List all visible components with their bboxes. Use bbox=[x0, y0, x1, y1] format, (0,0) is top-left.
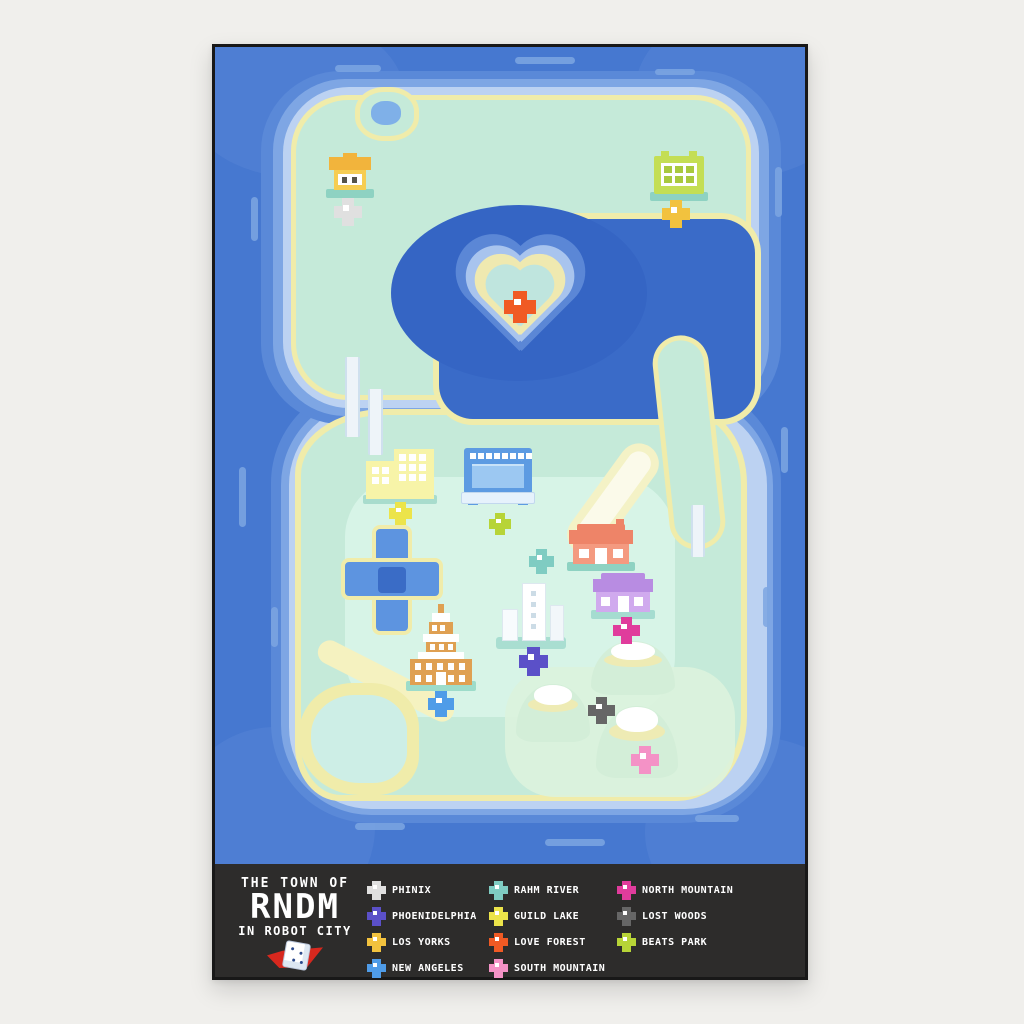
legend-chip-los-yorks-icon bbox=[367, 933, 386, 952]
legend-item-love-forest: LOVE FOREST bbox=[489, 930, 617, 954]
legend-chip-beats-park-icon bbox=[617, 933, 636, 952]
lake-deep-water bbox=[378, 567, 406, 593]
map-marker-phinix-icon bbox=[334, 198, 362, 226]
legend-item-new-angeles: NEW ANGELES bbox=[367, 956, 489, 980]
legend-chip-new-angeles-icon bbox=[367, 959, 386, 978]
wave-mark bbox=[545, 839, 605, 846]
map-marker-rahm-river-icon bbox=[529, 549, 554, 574]
map-marker-beats-park-icon bbox=[489, 513, 511, 535]
legend-chip-north-mountain-icon bbox=[617, 881, 636, 900]
white-skyscrapers bbox=[496, 581, 566, 651]
legend-band: THE TOWN OF RNDM IN ROBOT CITY PHINIXPHO… bbox=[215, 864, 805, 977]
legend-label-rahm-river: RAHM RIVER bbox=[514, 885, 579, 896]
legend-label-guild-lake: GUILD LAKE bbox=[514, 911, 579, 922]
legend-columns: PHINIXPHOENIDELPHIALOS YORKSNEW ANGELESR… bbox=[367, 876, 797, 980]
map-marker-north-mountain-icon bbox=[613, 617, 640, 644]
legend-item-guild-lake: GUILD LAKE bbox=[489, 904, 617, 928]
legend-column-2: RAHM RIVERGUILD LAKELOVE FORESTSOUTH MOU… bbox=[489, 878, 617, 980]
cove-pond bbox=[371, 101, 401, 125]
poster: THE TOWN OF RNDM IN ROBOT CITY PHINIXPHO… bbox=[212, 44, 808, 980]
bridge bbox=[691, 505, 705, 557]
purple-house bbox=[593, 573, 653, 619]
legend-item-beats-park: BEATS PARK bbox=[617, 930, 763, 954]
page-background: { "poster": { "title": { "line1": "THE T… bbox=[0, 0, 1024, 1024]
wave-mark bbox=[775, 167, 782, 217]
legend-chip-south-mountain-icon bbox=[489, 959, 508, 978]
wave-mark bbox=[239, 467, 246, 527]
legend-label-lost-woods: LOST WOODS bbox=[642, 911, 707, 922]
wave-mark bbox=[781, 427, 788, 473]
legend-label-phoenidelphia: PHOENIDELPHIA bbox=[392, 911, 477, 922]
dice-logo bbox=[263, 941, 327, 975]
legend-chip-rahm-river-icon bbox=[489, 881, 508, 900]
lime-office-building bbox=[654, 151, 708, 201]
legend-label-los-yorks: LOS YORKS bbox=[392, 937, 451, 948]
wave-mark bbox=[271, 607, 278, 647]
yellow-house bbox=[329, 153, 377, 199]
legend-column-3: NORTH MOUNTAINLOST WOODSBEATS PARK bbox=[617, 878, 763, 980]
legend-chip-phinix-icon bbox=[367, 881, 386, 900]
legend-label-new-angeles: NEW ANGELES bbox=[392, 963, 464, 974]
pixel-map bbox=[215, 47, 805, 864]
wave-mark bbox=[655, 69, 695, 75]
map-marker-new-angeles-icon bbox=[428, 691, 454, 717]
capitol-tower-building bbox=[410, 604, 472, 692]
map-marker-love-forest-icon bbox=[504, 291, 536, 323]
legend-item-south-mountain: SOUTH MOUNTAIN bbox=[489, 956, 617, 980]
map-marker-guild-lake-icon bbox=[389, 502, 412, 525]
map-marker-los-yorks-icon bbox=[662, 200, 690, 228]
legend-label-beats-park: BEATS PARK bbox=[642, 937, 707, 948]
legend-label-phinix: PHINIX bbox=[392, 885, 431, 896]
legend-chip-love-forest-icon bbox=[489, 933, 508, 952]
wave-mark bbox=[251, 197, 258, 241]
map-marker-lost-woods-icon bbox=[588, 697, 615, 724]
wave-mark bbox=[763, 587, 770, 627]
legend-label-love-forest: LOVE FOREST bbox=[514, 937, 586, 948]
map-marker-south-mountain-icon bbox=[631, 746, 659, 774]
legend-item-rahm-river: RAHM RIVER bbox=[489, 878, 617, 902]
title-line-2: RNDM bbox=[229, 891, 361, 923]
bridge bbox=[368, 389, 383, 455]
legend-chip-phoenidelphia-icon bbox=[367, 907, 386, 926]
cream-apartment-building bbox=[366, 449, 436, 505]
wave-mark bbox=[515, 57, 575, 64]
legend-chip-lost-woods-icon bbox=[617, 907, 636, 926]
legend-item-phinix: PHINIX bbox=[367, 878, 489, 902]
legend-item-north-mountain: NORTH MOUNTAIN bbox=[617, 878, 763, 902]
legend-chip-guild-lake-icon bbox=[489, 907, 508, 926]
legend-item-los-yorks: LOS YORKS bbox=[367, 930, 489, 954]
legend-label-south-mountain: SOUTH MOUNTAIN bbox=[514, 963, 605, 974]
southwest-beach bbox=[299, 683, 419, 795]
legend-label-north-mountain: NORTH MOUNTAIN bbox=[642, 885, 733, 896]
bridge bbox=[345, 357, 360, 437]
poster-title-block: THE TOWN OF RNDM IN ROBOT CITY bbox=[229, 876, 361, 975]
legend-item-lost-woods: LOST WOODS bbox=[617, 904, 763, 928]
title-line-3: IN ROBOT CITY bbox=[229, 924, 361, 938]
salmon-house bbox=[569, 524, 633, 571]
wave-mark bbox=[355, 823, 405, 830]
blue-stadium bbox=[464, 448, 532, 506]
dice-icon bbox=[282, 940, 311, 971]
wave-mark bbox=[335, 65, 381, 72]
ring-island-cove bbox=[355, 87, 419, 141]
legend-item-phoenidelphia: PHOENIDELPHIA bbox=[367, 904, 489, 928]
legend-column-1: PHINIXPHOENIDELPHIALOS YORKSNEW ANGELES bbox=[367, 878, 489, 980]
map-marker-phoenidelphia-icon bbox=[519, 647, 548, 676]
wave-mark bbox=[695, 815, 739, 822]
